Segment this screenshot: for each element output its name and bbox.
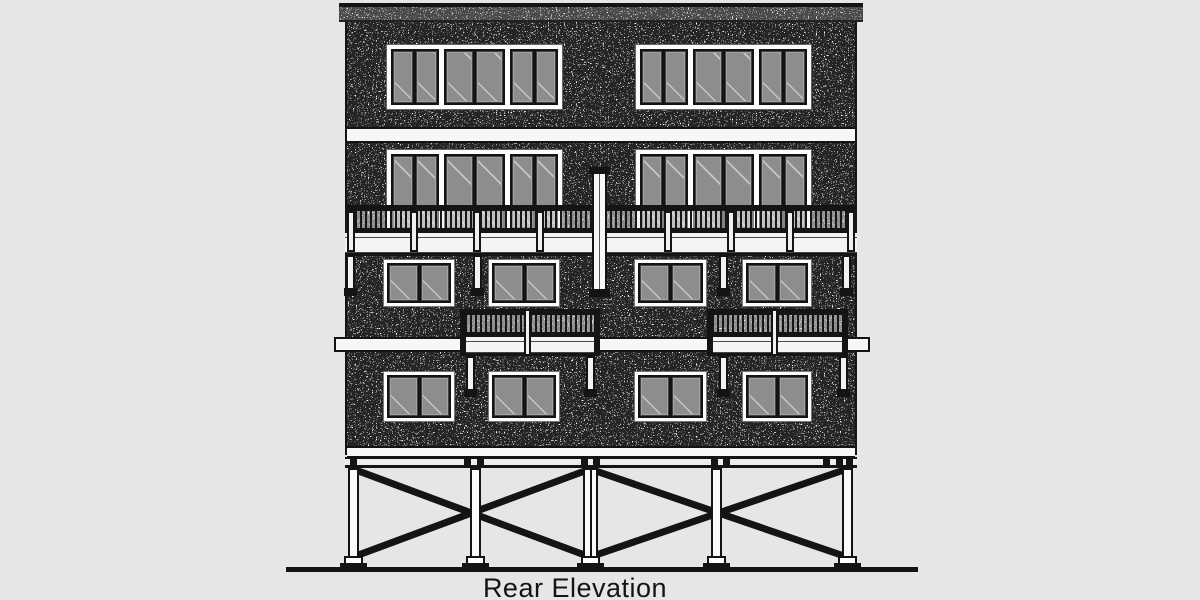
flue-bottom-cap	[589, 289, 610, 297]
balcony-end-post	[460, 309, 466, 356]
window-unit	[444, 49, 505, 105]
window-second-2	[488, 259, 560, 307]
beam-connector	[823, 459, 830, 468]
piling-post	[348, 468, 359, 558]
piling-post	[842, 468, 853, 558]
window-pane	[389, 377, 418, 416]
balcony-hanger-post	[839, 356, 848, 392]
window-pane	[785, 51, 805, 103]
beam-connector	[477, 459, 484, 468]
beam-connector	[723, 459, 730, 468]
deck-rail-post	[847, 211, 855, 252]
beam-connector	[593, 459, 600, 468]
window-pane	[389, 265, 418, 301]
window-pane	[748, 265, 776, 301]
rear-elevation-sheet: Rear Elevation	[0, 0, 1200, 600]
piling-post	[470, 468, 481, 558]
piling-beam	[345, 457, 857, 468]
window-pane	[446, 51, 473, 103]
window-pane	[640, 377, 669, 416]
window-pane	[476, 51, 503, 103]
beam-connector	[581, 459, 588, 468]
window-unit	[391, 49, 439, 105]
beam-connector	[350, 459, 357, 468]
balcony-end-post	[707, 309, 713, 356]
piling-post	[711, 468, 722, 558]
hanger-post-cap	[717, 288, 730, 296]
floor-band-upper	[347, 127, 855, 143]
cornice-stipple-texture	[339, 7, 863, 20]
window-unit	[746, 375, 808, 418]
window-pane	[494, 265, 523, 301]
window-pane	[421, 377, 450, 416]
window-unit	[746, 263, 808, 303]
hanger-post-cap	[840, 288, 853, 296]
window-pane	[779, 377, 807, 416]
window-unit	[693, 49, 754, 105]
window-unit	[638, 375, 703, 418]
window-pane	[748, 377, 776, 416]
footing-baseplate	[340, 563, 367, 567]
window-first-1	[383, 371, 455, 422]
hanger-post-cap	[464, 389, 477, 397]
window-pane	[642, 51, 662, 103]
balcony-hanger-post	[466, 356, 475, 392]
deck-hanger-post	[719, 255, 728, 290]
beam-connector	[711, 459, 718, 468]
balcony-hanger-post	[586, 356, 595, 392]
footing-baseplate	[577, 563, 604, 567]
window-unit	[640, 49, 688, 105]
deck-rail-post	[664, 211, 672, 252]
balcony-hanger-post	[719, 356, 728, 392]
hanger-post-cap	[584, 389, 597, 397]
cross-bracing	[345, 460, 857, 566]
deck-rail-post	[473, 211, 481, 252]
window-pane	[665, 51, 685, 103]
hanger-post-cap	[717, 389, 730, 397]
window-first-3	[634, 371, 707, 422]
balcony-center-post	[771, 309, 778, 356]
window-pane	[725, 51, 752, 103]
footing-baseplate	[703, 563, 730, 567]
window-unit	[759, 49, 807, 105]
beam-connector	[846, 459, 853, 468]
balcony-center-post	[524, 309, 531, 356]
window-second-1	[383, 259, 455, 307]
footing-baseplate	[834, 563, 861, 567]
deck-rail-post	[786, 211, 794, 252]
deck-rail-post	[727, 211, 735, 252]
window-pane	[512, 51, 532, 103]
window-pane	[761, 51, 781, 103]
balcony-end-post	[842, 309, 848, 356]
window-unit	[510, 49, 558, 105]
hanger-post-cap	[344, 288, 357, 296]
deck-rail-post	[536, 211, 544, 252]
window-pane	[695, 51, 722, 103]
balcony-right	[707, 309, 848, 356]
window-group-top-left	[386, 44, 563, 110]
window-pane	[421, 265, 450, 301]
deck-rail-post	[347, 211, 355, 252]
window-pane	[779, 265, 807, 301]
deck-hanger-post	[842, 255, 851, 290]
window-second-4	[742, 259, 812, 307]
center-flue-post	[592, 172, 607, 292]
deck-hanger-post	[473, 255, 482, 290]
window-group-top-right	[635, 44, 812, 110]
window-unit	[387, 375, 451, 418]
window-pane	[536, 51, 556, 103]
balcony-left	[460, 309, 600, 356]
balcony-end-post	[594, 309, 600, 356]
window-pane	[526, 377, 555, 416]
window-pane	[672, 377, 701, 416]
window-pane	[640, 265, 669, 301]
beam-connector	[836, 459, 843, 468]
window-second-3	[634, 259, 707, 307]
window-pane	[393, 51, 413, 103]
drawing-title: Rear Elevation	[375, 573, 775, 600]
hanger-post-cap	[471, 288, 484, 296]
window-first-2	[488, 371, 560, 422]
footing-baseplate	[462, 563, 489, 567]
window-unit	[387, 263, 451, 303]
window-unit	[492, 263, 556, 303]
ground-line	[286, 567, 918, 572]
beam-connector	[464, 459, 471, 468]
window-unit	[638, 263, 703, 303]
window-first-4	[742, 371, 812, 422]
hanger-post-cap	[837, 389, 850, 397]
piling-post-double	[583, 468, 598, 558]
window-unit	[492, 375, 556, 418]
roof-cornice	[339, 3, 863, 22]
window-pane	[672, 265, 701, 301]
window-pane	[494, 377, 523, 416]
window-pane	[416, 51, 436, 103]
deck-hanger-post	[346, 255, 355, 290]
window-pane	[526, 265, 555, 301]
deck-rail-post	[410, 211, 418, 252]
